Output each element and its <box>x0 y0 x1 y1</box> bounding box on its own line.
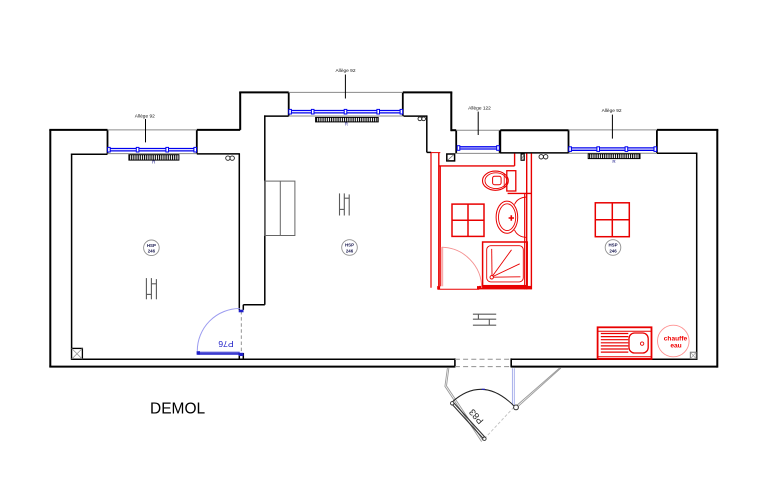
svg-text:HSP: HSP <box>345 243 354 248</box>
svg-text:Allège 122: Allège 122 <box>468 105 491 111</box>
svg-text:246: 246 <box>609 248 617 253</box>
svg-text:eau: eau <box>670 343 681 350</box>
svg-text:246: 246 <box>346 248 354 253</box>
svg-text:Allège 92: Allège 92 <box>135 114 155 120</box>
svg-text:chauffe: chauffe <box>664 335 688 342</box>
svg-text:DEMOL: DEMOL <box>150 400 206 417</box>
svg-text:HSP: HSP <box>147 243 156 248</box>
svg-text:HSP: HSP <box>608 243 617 248</box>
svg-text:Allège 92: Allège 92 <box>335 68 355 74</box>
svg-text:P76: P76 <box>218 339 234 349</box>
svg-text:Allège 92: Allège 92 <box>602 108 622 114</box>
svg-text:246: 246 <box>148 249 156 254</box>
